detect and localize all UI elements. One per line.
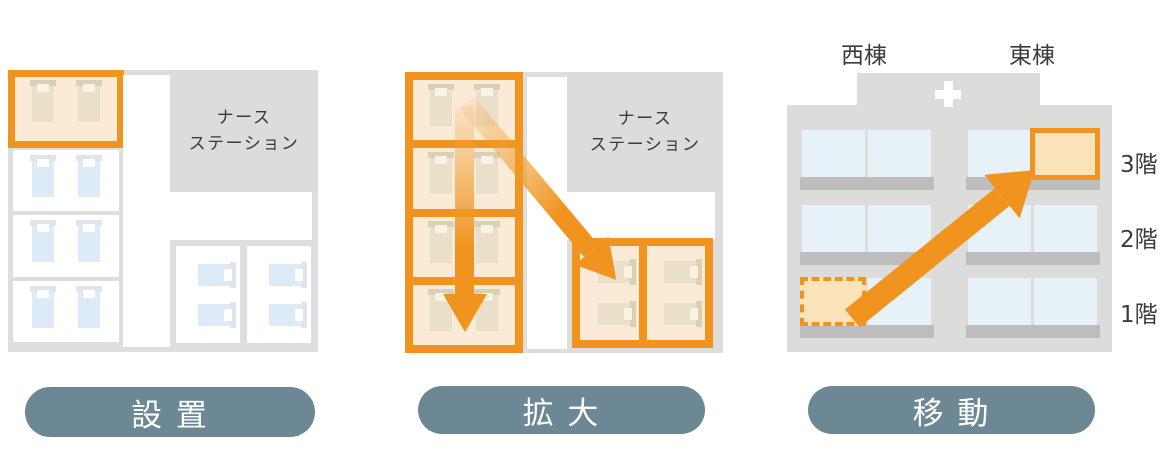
nurse-station-label-line1: ナース (217, 105, 272, 131)
bed-icon (78, 157, 100, 197)
bed-icon (32, 222, 54, 262)
nurse-station-label-line1: ナース (618, 106, 673, 132)
expanded-room (413, 217, 515, 277)
patient-room (13, 215, 119, 277)
move-destination-room (1030, 128, 1100, 180)
bed-icon (476, 291, 498, 331)
bed-icon (78, 82, 100, 122)
floor-label-3f: 3階 (1120, 145, 1158, 179)
expanded-room-block (572, 238, 713, 348)
expanded-room (413, 80, 515, 140)
bed-icon (598, 261, 634, 283)
corridor (527, 77, 567, 349)
bed-icon (598, 303, 634, 325)
bed-icon (32, 157, 54, 197)
window (868, 278, 931, 325)
expanded-room (580, 246, 639, 340)
nurse-station: ナース ステーション (567, 72, 723, 192)
window (1034, 205, 1097, 252)
nurse-station: ナース ステーション (170, 70, 318, 192)
patient-room (247, 246, 311, 343)
corridor (567, 192, 715, 240)
bed-icon (198, 304, 234, 326)
east-wing-label: 東棟 (992, 36, 1072, 70)
window-sill (800, 177, 934, 190)
nurse-station-label-line2: ステーション (189, 131, 300, 157)
floor-label-2f: 2階 (1120, 220, 1158, 254)
bed-icon (430, 86, 452, 126)
window (968, 278, 1031, 325)
bed-icon (78, 222, 100, 262)
window-sill (966, 252, 1100, 265)
window (868, 205, 931, 252)
window (868, 130, 931, 177)
bed-icon (198, 264, 234, 286)
step-pill-move: 移 動 (808, 386, 1095, 434)
expanded-room (413, 148, 515, 208)
nurse-station-label-line2: ステーション (590, 132, 701, 158)
bed-icon (476, 223, 498, 263)
floor-plan-installation: ナース ステーション (8, 70, 318, 352)
floor-plan-expansion: ナース ステーション (405, 72, 723, 353)
bed-icon (476, 86, 498, 126)
patient-room (13, 281, 119, 342)
bed-icon (430, 291, 452, 331)
patient-room (13, 150, 119, 211)
window-sill (800, 325, 934, 338)
bed-icon (269, 304, 305, 326)
hospital-building (787, 70, 1112, 352)
step-label-expansion: 拡 大 (523, 388, 601, 433)
bed-icon (476, 154, 498, 194)
step-label-installation: 設 置 (131, 390, 209, 435)
floor-label-1f: 1階 (1120, 295, 1158, 329)
bed-icon (78, 288, 100, 328)
window-sill (966, 325, 1100, 338)
bed-icon (664, 303, 700, 325)
highlighted-room (8, 70, 124, 148)
corridor (170, 192, 312, 240)
window (968, 130, 1031, 177)
bed-icon (430, 154, 452, 194)
bed-icon (664, 261, 700, 283)
bed-icon (32, 288, 54, 328)
hospital-cross-icon (935, 81, 961, 107)
step-pill-installation: 設 置 (25, 387, 315, 437)
bed-icon (32, 82, 54, 122)
window (802, 130, 865, 177)
corridor (123, 75, 170, 347)
window (1034, 278, 1097, 325)
bed-icon (430, 223, 452, 263)
bed-icon (269, 264, 305, 286)
expanded-room (647, 246, 706, 340)
patient-room (176, 246, 240, 343)
window (802, 205, 865, 252)
step-pill-expansion: 拡 大 (418, 386, 705, 434)
window-sill (800, 252, 934, 265)
window (968, 205, 1031, 252)
expanded-room (413, 285, 515, 345)
expanded-room-block (405, 72, 523, 353)
west-wing-label: 西棟 (824, 36, 904, 70)
step-label-move: 移 動 (913, 388, 991, 433)
move-source-room (800, 277, 866, 326)
three-step-hospital-diagram: ナース ステーション 設 置 (0, 0, 1170, 476)
